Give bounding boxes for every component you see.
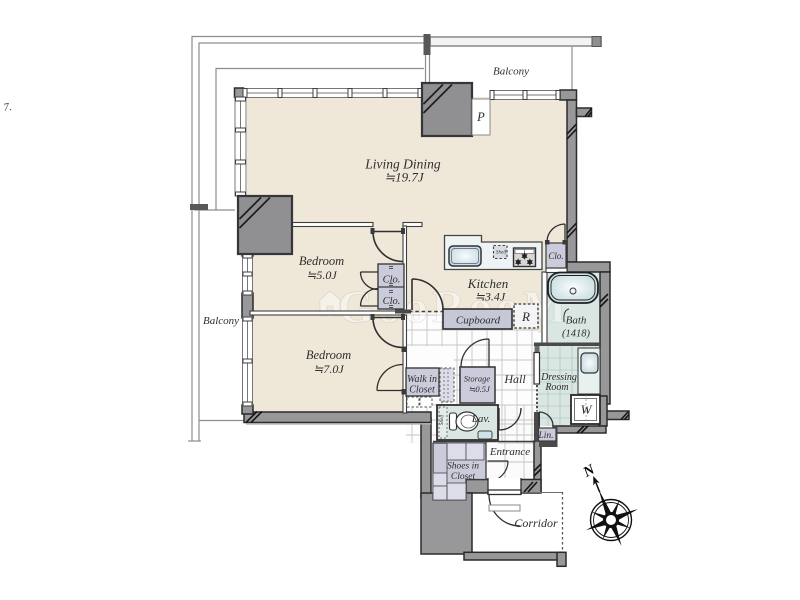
svg-text:Bedroom: Bedroom [299,254,344,268]
svg-text:Closet: Closet [451,472,476,482]
svg-text:P: P [476,110,485,124]
svg-text:Storage: Storage [464,374,491,384]
svg-text:Room: Room [544,382,568,393]
svg-text:(1418): (1418) [562,329,590,340]
svg-text:Walk in: Walk in [407,374,437,385]
svg-text:≒7.0J: ≒7.0J [313,362,344,376]
svg-text:R: R [521,309,530,324]
svg-text:Bath: Bath [566,315,587,327]
svg-text:Shelf: Shelf [440,414,445,425]
svg-text:Balcony: Balcony [493,66,529,78]
svg-text:Clo.: Clo. [548,251,563,261]
svg-text:7.: 7. [3,101,13,114]
svg-text:Balcony: Balcony [203,315,239,327]
svg-text:Clo.: Clo. [383,275,401,286]
svg-text:≒0.5J: ≒0.5J [468,384,491,394]
svg-text:Lin.: Lin. [537,431,553,441]
svg-text:Hall: Hall [503,372,526,386]
svg-text:≒5.0J: ≒5.0J [306,268,337,282]
svg-text:Cupboard: Cupboard [456,315,501,327]
svg-text:Shoes in: Shoes in [447,462,479,472]
svg-text:Lav.: Lav. [471,413,490,425]
svg-text:Bedroom: Bedroom [306,348,351,362]
svg-text:≒3.4J: ≒3.4J [475,290,506,304]
svg-text:≒19.7J: ≒19.7J [384,170,425,185]
svg-text:Clo.: Clo. [383,296,401,307]
svg-text:W: W [581,402,593,417]
svg-text:Entrance: Entrance [489,446,530,458]
svg-text:Corridor: Corridor [514,516,558,530]
svg-text:Shelf: Shelf [496,251,507,256]
svg-text:Closet: Closet [409,385,435,396]
